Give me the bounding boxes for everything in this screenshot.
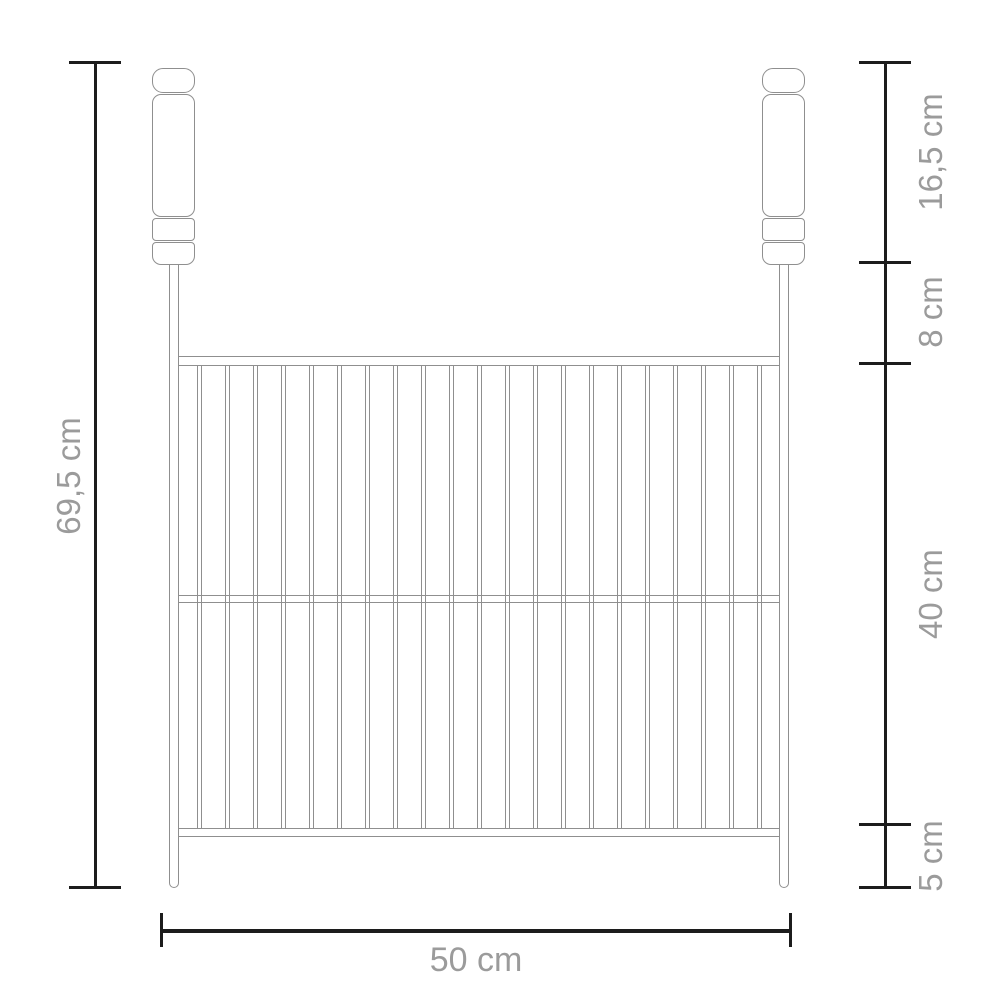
handle-ring [762,242,805,265]
grill-right-rod [779,260,789,888]
handle-ring [762,218,805,241]
grill-handle-right [762,68,805,265]
grill-left-rod [169,260,179,888]
dimension-tick [69,61,121,64]
width-label: 50 cm [356,940,596,980]
dimension-tick [859,362,911,365]
grill-top-rail [174,356,786,366]
grill-bottom-rail [174,828,786,837]
dimension-tick [859,261,911,264]
handle-ring [152,242,195,265]
dimension-line-right-chain [884,62,887,888]
grill-handle-left [152,68,195,265]
grid-height-label: 40 cm [911,484,951,704]
dimension-tick [69,886,121,889]
handle-body [152,94,195,217]
dimension-diagram: 69,5 cm 16,5 cm 8 cm 40 cm 5 cm 50 cm [0,0,1000,1000]
handle-ring [152,218,195,241]
dimension-tick [859,886,911,889]
bottom-clearance-label: 5 cm [911,746,951,966]
total-height-label: 69,5 cm [49,366,89,586]
hanger-gap-label: 8 cm [911,202,951,422]
dimension-tick [789,913,792,947]
dimension-tick [859,61,911,64]
handle-cap [762,68,805,93]
dimension-tick [160,913,163,947]
handle-cap [152,68,195,93]
dimension-tick [859,823,911,826]
handle-body [762,94,805,217]
dimension-line-width [161,929,791,933]
dimension-line-total-height [94,62,97,888]
grill-middle-rail [174,595,786,603]
